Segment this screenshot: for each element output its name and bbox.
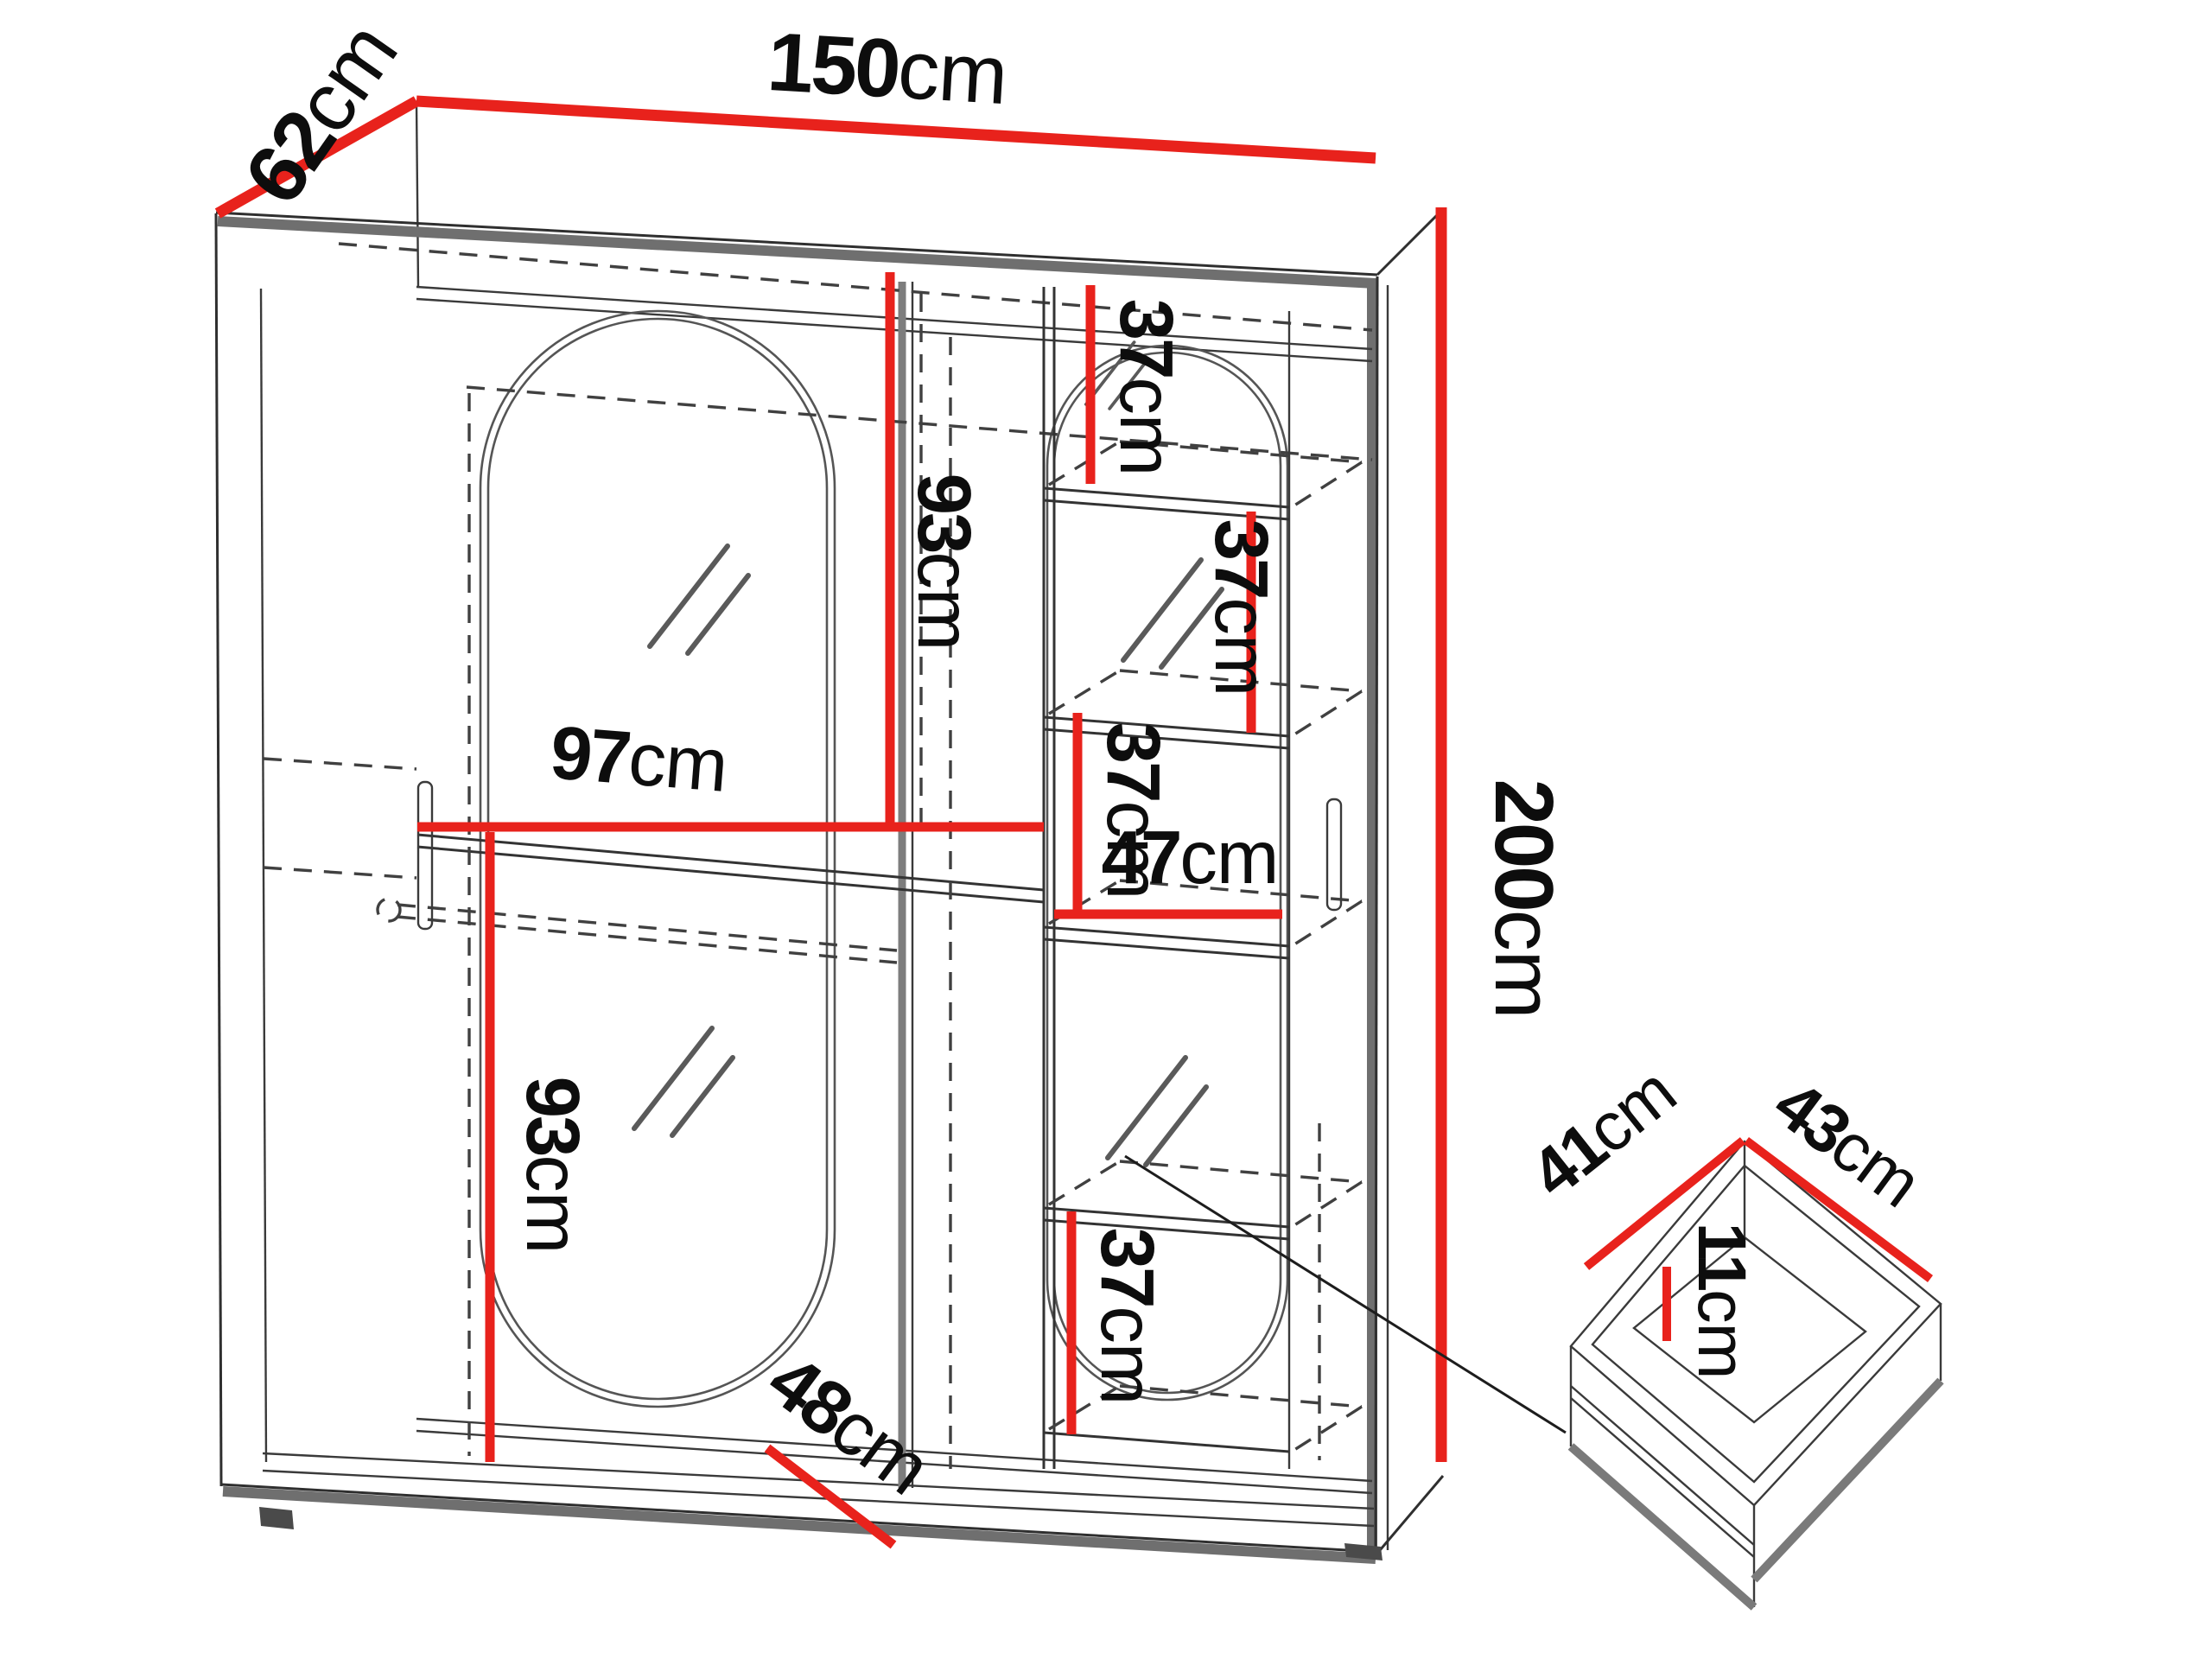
dim-label-drawer-width: 43cm (1760, 1065, 1935, 1222)
dim-label-shelf-inner: 37cm (1199, 519, 1283, 696)
drawer-side-bottom (1754, 1381, 1941, 1580)
diagram-svg: 150cm 62cm 200cm 97cm 93cm 93cm 37cm 37c… (0, 0, 2212, 1659)
dim-label-column-width: 47cm (1102, 816, 1279, 899)
right-door-handle (1327, 799, 1341, 910)
door-divider (902, 282, 912, 1488)
wardrobe-dimension-diagram: 150cm 62cm 200cm 97cm 93cm 93cm 37cm 37c… (0, 0, 2212, 1659)
drawer-front-bottom (1571, 1446, 1754, 1607)
dim-label-shelf-bottom: 37cm (1085, 1228, 1169, 1405)
left-edges (216, 213, 266, 1486)
dim-label-drawer-depth: 41cm (1516, 1052, 1689, 1212)
dim-label-base-diagonal: 48cm (753, 1338, 944, 1510)
right-side-panel (1372, 209, 1443, 1555)
dim-label-drawer-height: 11cm (1684, 1223, 1761, 1379)
left-foot (259, 1507, 294, 1529)
dim-label-left-section-width: 97cm (547, 710, 730, 808)
dim-label-height: 200cm (1478, 779, 1570, 1018)
dim-label-mirror-upper: 93cm (902, 474, 986, 651)
dim-label-width: 150cm (765, 16, 1009, 122)
dim-label-mirror-lower: 93cm (511, 1077, 594, 1254)
top-rail (218, 221, 1376, 283)
hanging-rod-end (378, 899, 400, 921)
dim-label-shelf-top: 37cm (1104, 299, 1188, 476)
mirror-shine-icon (634, 546, 748, 1135)
